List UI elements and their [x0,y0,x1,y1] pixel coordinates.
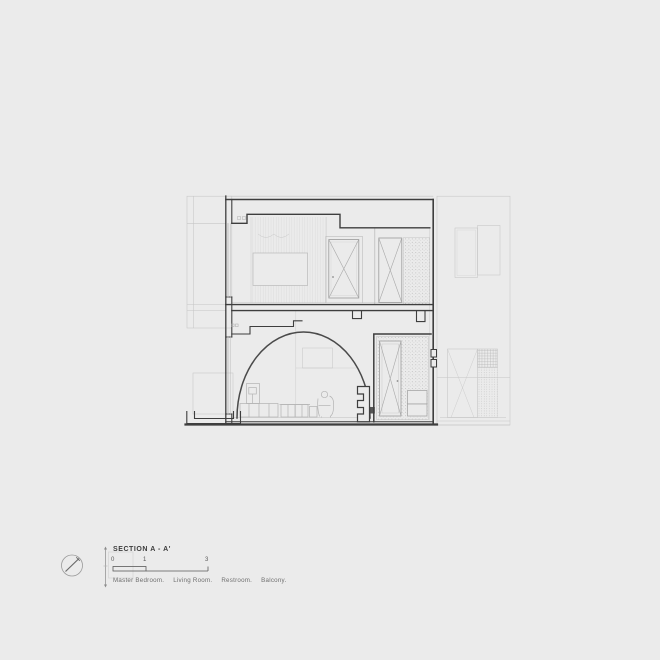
balcony-context [437,196,510,425]
upper-floor-doors [326,228,430,305]
living-room-furniture [240,384,334,418]
lamp-niche [247,384,260,404]
section-drawing [0,0,660,660]
wall-picture [303,348,333,368]
architectural-sheet: SECTION A - A' 0 1 3 Master Bedroom. Liv… [0,0,660,660]
restroom-section [370,337,429,420]
upper-restroom-door-leaf [379,238,402,303]
bedroom-door-leaf [329,240,359,299]
upper-wall-finish-hatch [404,238,430,305]
living-room-arch [237,332,370,418]
restroom-door-leaf [380,341,402,416]
seated-person [318,391,334,417]
door-handle [397,380,399,382]
stepped-ceiling [232,321,302,334]
table-lamp [249,388,256,395]
stool [310,407,318,418]
arch-jamb-profile [358,387,370,422]
bench [281,405,308,418]
slab-downstand [417,311,426,322]
restroom-cabinet [408,391,428,405]
door-handle [332,276,334,278]
bed-headboard [253,253,308,286]
left-wall-glazing [227,223,230,414]
slab-downstand [353,311,362,319]
